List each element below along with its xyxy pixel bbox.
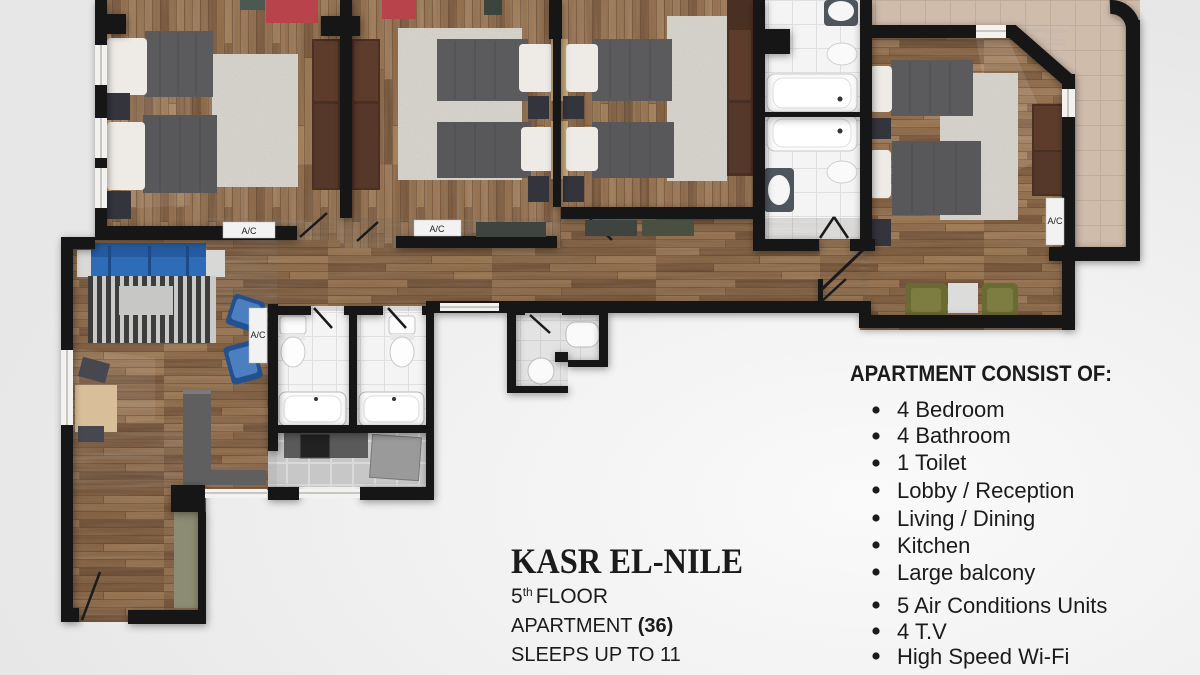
svg-text:APARTMENT CONSIST OF:: APARTMENT CONSIST OF: xyxy=(850,361,1112,386)
svg-text:KASR EL-NILE: KASR EL-NILE xyxy=(511,541,743,581)
svg-text:4 Bathroom: 4 Bathroom xyxy=(897,423,1011,448)
svg-text:A/C: A/C xyxy=(250,330,266,340)
svg-text:Living / Dining: Living / Dining xyxy=(897,506,1035,531)
svg-text:APARTMENT (36): APARTMENT (36) xyxy=(511,615,673,637)
svg-text:Lobby / Reception: Lobby / Reception xyxy=(897,478,1074,503)
svg-text:Kitchen: Kitchen xyxy=(897,533,970,558)
svg-text:A/C: A/C xyxy=(1047,216,1063,226)
svg-text:5 Air Conditions Units: 5 Air Conditions Units xyxy=(897,593,1107,618)
svg-text:A/C: A/C xyxy=(429,224,445,234)
svg-text:4 Bedroom: 4 Bedroom xyxy=(897,397,1005,422)
svg-text:4 T.V: 4 T.V xyxy=(897,619,947,644)
svg-text:High Speed Wi-Fi: High Speed Wi-Fi xyxy=(897,644,1069,669)
svg-text:Large balcony: Large balcony xyxy=(897,560,1035,585)
svg-text:1 Toilet: 1 Toilet xyxy=(897,450,966,475)
svg-text:SLEEPS UP TO 11: SLEEPS UP TO 11 xyxy=(511,644,681,666)
svg-text:A/C: A/C xyxy=(241,226,257,236)
